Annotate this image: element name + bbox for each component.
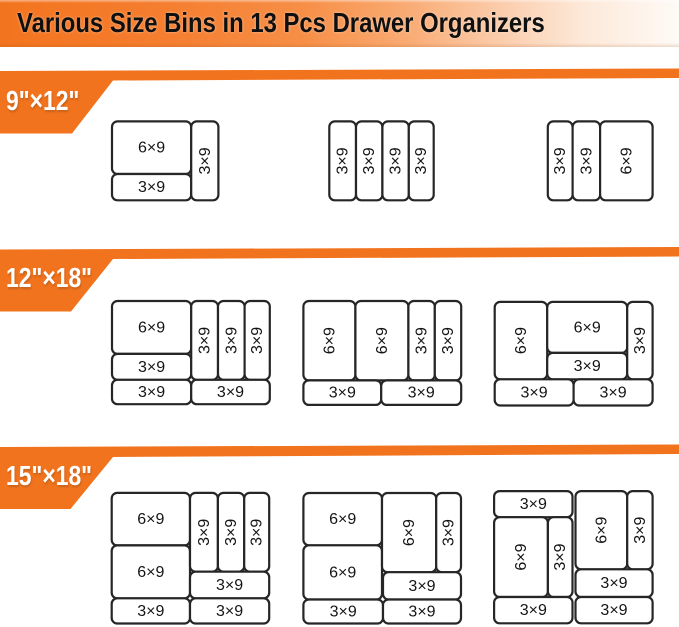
svg-text:3×9: 3×9 xyxy=(578,147,595,174)
svg-text:3×9: 3×9 xyxy=(217,384,244,401)
svg-text:3×9: 3×9 xyxy=(138,384,165,401)
svg-text:3×9: 3×9 xyxy=(196,519,213,546)
svg-text:3×9: 3×9 xyxy=(521,384,548,401)
svg-text:3×9: 3×9 xyxy=(249,519,266,546)
svg-text:6×9: 6×9 xyxy=(321,327,338,354)
svg-text:6×9: 6×9 xyxy=(137,511,164,528)
svg-text:6×9: 6×9 xyxy=(513,543,530,570)
svg-text:3×9: 3×9 xyxy=(335,147,352,174)
svg-text:3×9: 3×9 xyxy=(138,179,165,196)
svg-text:3×9: 3×9 xyxy=(600,602,627,619)
svg-text:3×9: 3×9 xyxy=(223,327,240,354)
svg-text:3×9: 3×9 xyxy=(361,147,378,174)
svg-text:3×9: 3×9 xyxy=(441,519,458,546)
svg-text:6×9: 6×9 xyxy=(329,564,356,581)
svg-text:3×9: 3×9 xyxy=(223,519,240,546)
svg-text:3×9: 3×9 xyxy=(552,543,569,570)
svg-text:6×9: 6×9 xyxy=(593,517,610,544)
svg-text:6×9: 6×9 xyxy=(138,140,165,157)
svg-text:3×9: 3×9 xyxy=(216,577,243,594)
svg-text:3×9: 3×9 xyxy=(388,147,405,174)
svg-text:3×9: 3×9 xyxy=(249,327,266,354)
svg-text:3×9: 3×9 xyxy=(574,358,601,375)
svg-text:6×9: 6×9 xyxy=(329,511,356,528)
svg-text:3×9: 3×9 xyxy=(197,327,214,354)
svg-text:3×9: 3×9 xyxy=(600,384,627,401)
svg-text:6×9: 6×9 xyxy=(401,519,418,546)
svg-text:3×9: 3×9 xyxy=(632,327,649,354)
svg-text:6×9: 6×9 xyxy=(374,327,391,354)
svg-text:3×9: 3×9 xyxy=(520,496,547,513)
svg-text:3×9: 3×9 xyxy=(216,603,243,620)
svg-text:3×9: 3×9 xyxy=(408,604,435,621)
svg-text:6×9: 6×9 xyxy=(513,327,530,354)
svg-text:3×9: 3×9 xyxy=(329,385,356,402)
svg-text:3×9: 3×9 xyxy=(440,327,457,354)
svg-text:6×9: 6×9 xyxy=(618,147,635,174)
svg-text:3×9: 3×9 xyxy=(600,575,627,592)
svg-text:3×9: 3×9 xyxy=(138,359,165,376)
svg-text:3×9: 3×9 xyxy=(197,147,214,174)
svg-text:3×9: 3×9 xyxy=(137,603,164,620)
svg-text:3×9: 3×9 xyxy=(552,147,569,174)
svg-text:3×9: 3×9 xyxy=(408,578,435,595)
svg-text:3×9: 3×9 xyxy=(520,602,547,619)
svg-text:3×9: 3×9 xyxy=(408,385,435,402)
svg-text:3×9: 3×9 xyxy=(413,147,430,174)
svg-text:6×9: 6×9 xyxy=(138,319,165,336)
svg-text:3×9: 3×9 xyxy=(330,604,357,621)
svg-text:6×9: 6×9 xyxy=(137,564,164,581)
svg-text:6×9: 6×9 xyxy=(574,319,601,336)
svg-text:3×9: 3×9 xyxy=(632,517,649,544)
svg-text:3×9: 3×9 xyxy=(414,327,431,354)
